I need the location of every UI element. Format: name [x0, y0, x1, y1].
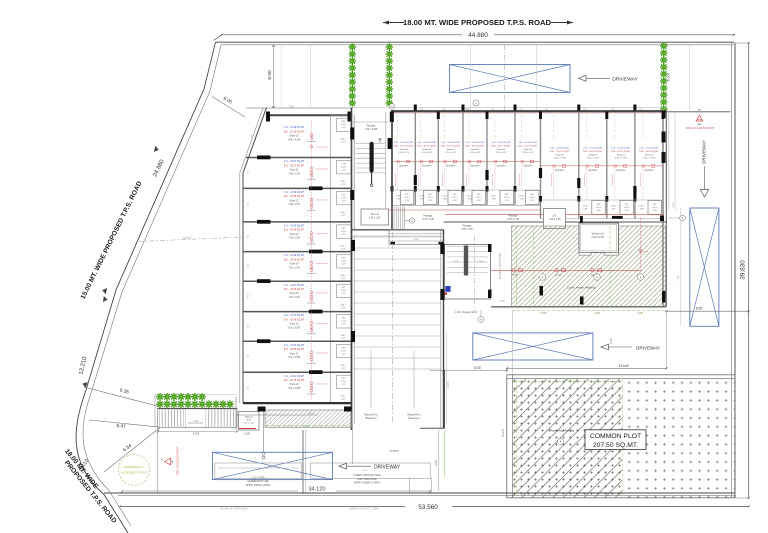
svg-text:UNDER GROUND TANK: UNDER GROUND TANK: [353, 474, 381, 477]
svg-text:1.27 x 1.00: 1.27 x 1.00: [244, 423, 255, 425]
svg-text:1.07 x: 1.07 x: [624, 207, 629, 209]
svg-text:smoke detector: smoke detector: [465, 173, 468, 186]
svg-text:1.07 x: 1.07 x: [504, 197, 509, 199]
svg-text:1.50 x: 1.50 x: [340, 396, 345, 398]
svg-text:1.03 x: 1.03 x: [583, 206, 588, 208]
svg-text:2.20 x 7.700: 2.20 x 7.700: [587, 158, 600, 160]
svg-text:7.83 x 2.06: 7.83 x 2.06: [288, 173, 300, 175]
svg-text:1.27: 1.27: [342, 293, 346, 295]
svg-text:1.95 x 1.95: 1.95 x 1.95: [549, 218, 561, 221]
svg-text:1.03 x: 1.03 x: [639, 206, 644, 208]
svg-text:FIRE ACCESS POINT: FIRE ACCESS POINT: [176, 446, 180, 475]
svg-text:1.27: 1.27: [342, 127, 346, 129]
svg-text:2.20 x 5.71: 2.20 x 5.71: [522, 152, 534, 154]
svg-text:B.A. - 18.01 SQ.MT: B.A. - 18.01 SQ.MT: [465, 144, 485, 147]
svg-text:Ambulance Visitor Parking: Ambulance Visitor Parking: [499, 252, 502, 278]
svg-text:Sprinkler: Sprinkler: [588, 169, 597, 172]
svg-text:FAP: FAP: [171, 459, 174, 464]
svg-text:smoke detector: smoke detector: [491, 173, 494, 186]
svg-text:smoke detector: smoke detector: [316, 322, 329, 325]
svg-text:B.A. - 20.78 SQ.MT: B.A. - 20.78 SQ.MT: [284, 379, 305, 382]
svg-text:6.00: 6.00: [474, 366, 481, 370]
svg-text:1.22 x: 1.22 x: [341, 381, 346, 383]
svg-text:B.A. - 20.08 SQ.MT: B.A. - 20.08 SQ.MT: [284, 288, 305, 291]
svg-text:C.VR: C.VR: [284, 468, 289, 470]
svg-text:Vehicle Lift: Vehicle Lift: [592, 233, 604, 236]
svg-text:smoke detector: smoke detector: [316, 232, 329, 235]
svg-text:53.560: 53.560: [418, 504, 438, 511]
svg-text:B.A. - 18.01 SQ.MT: B.A. - 18.01 SQ.MT: [550, 150, 570, 153]
svg-text:WC: WC: [505, 194, 509, 196]
svg-text:smoke detector: smoke detector: [316, 262, 329, 265]
svg-text:WC: WC: [597, 204, 601, 206]
svg-text:1.22 x: 1.22 x: [341, 261, 346, 263]
svg-text:C.A. - 21.04 SQ.MT: C.A. - 21.04 SQ.MT: [583, 147, 603, 150]
svg-text:1.50 x: 1.50 x: [340, 365, 345, 367]
svg-text:1.22 x: 1.22 x: [341, 124, 346, 126]
svg-text:Hydrant: Hydrant: [245, 416, 253, 419]
svg-text:2.20 x 5.71: 2.20 x 5.71: [470, 152, 482, 154]
svg-text:Sprinkler: Sprinkler: [446, 165, 455, 168]
svg-text:B.A. - 20.08 SQ.MT: B.A. - 20.08 SQ.MT: [284, 258, 305, 261]
svg-text:7.62 x 3.005: 7.62 x 3.005: [288, 327, 301, 329]
svg-text:Sprinkler: Sprinkler: [399, 165, 408, 168]
svg-text:APPR. 10000 LITERS: APPR. 10000 LITERS: [246, 484, 271, 487]
svg-text:2.20 x 7.700: 2.20 x 7.700: [643, 158, 656, 160]
svg-text:13.50: 13.50: [362, 470, 368, 472]
svg-text:Shop-12: Shop-12: [290, 200, 299, 202]
svg-text:Basement: Basement: [409, 417, 420, 420]
svg-text:smoke detector: smoke detector: [316, 352, 329, 355]
svg-text:smoke detector: smoke detector: [316, 382, 329, 385]
svg-text:B.A. - 18.01 SQ.MT: B.A. - 18.01 SQ.MT: [611, 150, 631, 153]
svg-text:6.000: 6.000: [667, 73, 671, 82]
svg-text:Passage: Passage: [367, 126, 377, 128]
svg-text:DRIVEWAY: DRIVEWAY: [612, 76, 638, 82]
svg-text:Shop-03: Shop-03: [556, 154, 565, 156]
svg-text:Shop-04: Shop-04: [524, 149, 533, 151]
svg-text:1.80 x 1.50: 1.80 x 1.50: [369, 217, 381, 220]
svg-text:6.00: 6.00: [434, 460, 438, 466]
svg-text:1.27: 1.27: [342, 353, 346, 355]
svg-text:smoke detector: smoke detector: [639, 173, 642, 186]
svg-text:B.A. - 18.01 SQ.MT: B.A. - 18.01 SQ.MT: [639, 150, 659, 153]
svg-text:C.A. - 21.04 SQ.MT: C.A. - 21.04 SQ.MT: [441, 141, 461, 144]
svg-text:Shop-11: Shop-11: [290, 170, 299, 172]
svg-text:smoke detector: smoke detector: [316, 291, 329, 294]
svg-text:B.A. - 20.08 SQ.MT: B.A. - 20.08 SQ.MT: [284, 318, 305, 321]
svg-text:7.62 x 2.06: 7.62 x 2.06: [288, 267, 300, 269]
svg-text:6.47: 6.47: [116, 423, 126, 430]
svg-text:1.22 x: 1.22 x: [341, 197, 346, 199]
svg-text:39.830: 39.830: [740, 260, 747, 280]
svg-text:1.500: 1.500: [303, 426, 309, 428]
svg-text:WC: WC: [477, 194, 481, 196]
svg-text:WC: WC: [653, 204, 657, 206]
svg-text:Rare Visitor Parking: Rare Visitor Parking: [550, 429, 574, 433]
svg-text:1.50 x: 1.50 x: [340, 275, 345, 277]
svg-text:AREA OF PLOT 2386: AREA OF PLOT 2386: [349, 507, 378, 511]
svg-text:2.600: 2.600: [453, 261, 459, 263]
svg-text:7.62 x 3.005: 7.62 x 3.005: [288, 388, 301, 390]
svg-text:Shop-08: Shop-08: [423, 149, 432, 151]
svg-text:B.A. - 18.01 SQ.MT: B.A. - 18.01 SQ.MT: [491, 144, 511, 147]
svg-text:C.A. - 21.99 SQ.MT: C.A. - 21.99 SQ.MT: [284, 254, 305, 257]
svg-text:6.00: 6.00: [267, 70, 273, 80]
svg-text:B.A. - 20.08 SQ.MT: B.A. - 20.08 SQ.MT: [284, 348, 305, 351]
svg-text:2.126: 2.126: [193, 421, 199, 423]
svg-text:1.22 x: 1.22 x: [341, 321, 346, 323]
svg-text:1.27: 1.27: [342, 234, 346, 236]
svg-text:7.015: 7.015: [678, 274, 680, 280]
svg-text:7.62 x 2.06: 7.62 x 2.06: [288, 238, 300, 240]
svg-text:Shop-09: Shop-09: [400, 149, 409, 151]
svg-text:10.075: 10.075: [448, 381, 450, 389]
svg-text:1.27: 1.27: [342, 170, 346, 172]
svg-text:2.20 x 7.700: 2.20 x 7.700: [615, 158, 628, 160]
svg-text:2.60 x 2.50: 2.60 x 2.50: [592, 236, 605, 239]
svg-text:1.03 x: 1.03 x: [442, 196, 447, 198]
svg-text:Shop-05: Shop-05: [497, 149, 506, 151]
svg-text:1.07 x: 1.07 x: [529, 197, 534, 199]
svg-text:1.10m Passage Width: 1.10m Passage Width: [455, 311, 478, 314]
svg-text:Cover Visitor Parking: Cover Visitor Parking: [566, 286, 595, 290]
svg-text:Shop-01: Shop-01: [617, 154, 626, 156]
svg-text:C.A. - 21.99 SQ.MT: C.A. - 21.99 SQ.MT: [284, 225, 305, 228]
svg-text:C.A. - 24.99 SQ.MT: C.A. - 24.99 SQ.MT: [284, 126, 305, 129]
svg-text:Shop-02: Shop-02: [589, 154, 598, 156]
svg-text:WC: WC: [428, 194, 432, 196]
svg-text:1.360: 1.360: [594, 312, 601, 315]
svg-text:44.880: 44.880: [468, 32, 488, 39]
svg-text:Fire Lift: Fire Lift: [371, 213, 379, 216]
svg-text:1.03 x: 1.03 x: [611, 206, 616, 208]
svg-text:WC: WC: [453, 194, 457, 196]
svg-text:5.900: 5.900: [541, 312, 548, 315]
svg-text:18.00 MT. WIDE PROPOSED T.P.S.: 18.00 MT. WIDE PROPOSED T.P.S. ROAD: [403, 18, 552, 27]
svg-text:1.22 x: 1.22 x: [341, 167, 346, 169]
svg-text:Sprinkler: Sprinkler: [555, 169, 564, 172]
svg-text:Passage: Passage: [463, 226, 473, 228]
svg-text:C.A. - 21.04 SQ.MT: C.A. - 21.04 SQ.MT: [394, 141, 414, 144]
svg-text:Shop-16: Shop-16: [290, 324, 299, 326]
svg-text:C.A. - 21.04 SQ.MT: C.A. - 21.04 SQ.MT: [417, 141, 437, 144]
svg-text:APPR. 100000 LITERS: APPR. 100000 LITERS: [354, 482, 380, 485]
svg-text:DRIVEWAY: DRIVEWAY: [636, 345, 660, 350]
svg-text:2.18 x 5.71: 2.18 x 5.71: [421, 152, 433, 154]
svg-text:7.536: 7.536: [288, 107, 294, 109]
svg-text:smoke detector: smoke detector: [316, 199, 329, 202]
svg-text:1.07 x: 1.07 x: [476, 197, 481, 199]
svg-text:1.27: 1.27: [342, 200, 346, 202]
svg-text:1.250: 1.250: [244, 433, 251, 436]
svg-text:B.A. - 18.01 SQ.MT: B.A. - 18.01 SQ.MT: [417, 144, 437, 147]
svg-text:Sprinkler: Sprinkler: [644, 169, 653, 172]
svg-text:Shop-15: Shop-15: [290, 293, 299, 295]
svg-text:Sprinkler: Sprinkler: [523, 165, 532, 168]
svg-text:smoke detector: smoke detector: [583, 173, 586, 186]
svg-text:Shop-10: Shop-10: [290, 136, 299, 138]
svg-text:B.A. - 20.17 SQ.MT: B.A. - 20.17 SQ.MT: [284, 164, 305, 167]
svg-text:1.27: 1.27: [342, 264, 346, 266]
svg-text:2.20 x 7.700: 2.20 x 7.700: [554, 158, 567, 160]
svg-text:1.27: 1.27: [342, 384, 346, 386]
svg-text:5.075: 5.075: [413, 239, 419, 241]
svg-text:1.07 x: 1.07 x: [404, 197, 409, 199]
svg-text:smoke detector: smoke detector: [441, 173, 444, 186]
svg-text:7.62 x 3.005: 7.62 x 3.005: [288, 357, 301, 359]
svg-text:Sprinkler: Sprinkler: [470, 165, 479, 168]
svg-text:4.63 x 1.98: 4.63 x 1.98: [507, 218, 519, 221]
svg-text:7.62 x 2.06: 7.62 x 2.06: [288, 297, 300, 299]
svg-text:smoke detector: smoke detector: [550, 173, 553, 186]
svg-text:2.20 x 5.71: 2.20 x 5.71: [496, 152, 508, 154]
svg-text:1.07 x: 1.07 x: [596, 207, 601, 209]
svg-text:PLAN OF GROUND: PLAN OF GROUND: [220, 507, 248, 511]
svg-text:C.A. - 21.97 SQ.MT: C.A. - 21.97 SQ.MT: [284, 344, 305, 347]
svg-text:C.A. - 21.04 SQ.MT: C.A. - 21.04 SQ.MT: [550, 147, 570, 150]
svg-text:C.A. - 23.07 SQ.MT: C.A. - 23.07 SQ.MT: [284, 160, 305, 163]
svg-text:C.A. - 23.08 SQ.MT: C.A. - 23.08 SQ.MT: [284, 191, 305, 194]
svg-text:Shop-06: Shop-06: [471, 149, 480, 151]
svg-text:DNC: DNC: [342, 121, 347, 123]
svg-text:4.47 x 1.98: 4.47 x 1.98: [422, 219, 434, 221]
svg-text:C.A. - 21.04 SQ.MT: C.A. - 21.04 SQ.MT: [611, 147, 631, 150]
svg-text:C.A. - 21.04 SQ.MT: C.A. - 21.04 SQ.MT: [518, 141, 538, 144]
svg-text:2.18 x 5.71: 2.18 x 5.71: [398, 152, 410, 154]
svg-text:ASSEMBLY POINT: ASSEMBLY POINT: [121, 471, 148, 475]
svg-text:1.07 x: 1.07 x: [427, 197, 432, 199]
svg-text:1.905: 1.905: [499, 301, 505, 303]
svg-text:Shop-18: Shop-18: [290, 384, 299, 386]
svg-text:1.07 x: 1.07 x: [652, 207, 657, 209]
svg-text:207.50 SQ.MT.: 207.50 SQ.MT.: [593, 442, 638, 449]
svg-text:7.83 x 2.06: 7.83 x 2.06: [288, 204, 300, 206]
svg-text:1.22 x: 1.22 x: [341, 231, 346, 233]
svg-text:A: A: [475, 101, 477, 105]
svg-text:smoke detector: smoke detector: [394, 173, 397, 186]
svg-text:4.275: 4.275: [308, 413, 314, 415]
svg-text:34.120: 34.120: [308, 486, 325, 492]
svg-text:FOR FIRE PUMP: FOR FIRE PUMP: [357, 478, 377, 481]
svg-text:1.22 x: 1.22 x: [341, 350, 346, 352]
svg-text:GENERATOR USE: GENERATOR USE: [247, 480, 269, 483]
svg-text:Shop-13: Shop-13: [290, 234, 299, 236]
svg-text:2.20 x 5.71: 2.20 x 5.71: [445, 152, 457, 154]
svg-text:Shop-07: Shop-07: [447, 149, 456, 151]
svg-text:4.00 x 3.45: 4.00 x 3.45: [461, 229, 473, 231]
svg-text:15.005: 15.005: [564, 378, 572, 381]
svg-text:1.03 x: 1.03 x: [396, 196, 401, 198]
svg-text:1.50 x: 1.50 x: [340, 181, 345, 183]
svg-text:smoke detector: smoke detector: [316, 146, 329, 149]
svg-text:Shop-17: Shop-17: [290, 353, 299, 355]
svg-text:Shop-14: Shop-14: [290, 264, 299, 266]
svg-text:WC: WC: [530, 194, 534, 196]
svg-text:13.675: 13.675: [501, 428, 505, 436]
svg-text:4.575: 4.575: [193, 432, 200, 436]
svg-text:Landing: Landing: [389, 449, 399, 453]
svg-text:B.A. - 18.01 SQ.MT: B.A. - 18.01 SQ.MT: [394, 144, 414, 147]
svg-text:13.640: 13.640: [618, 364, 628, 368]
svg-text:1.00 x 3.905: 1.00 x 3.905: [365, 129, 378, 131]
svg-text:C.A. - 21.04 SQ.MT: C.A. - 21.04 SQ.MT: [639, 147, 659, 150]
svg-text:B.A. - 18.01 SQ.MT: B.A. - 18.01 SQ.MT: [441, 144, 461, 147]
svg-text:Sprinkle: Sprinkle: [512, 273, 520, 276]
svg-text:Passage: Passage: [424, 216, 434, 218]
svg-text:C.A. - 21.97 SQ.MT: C.A. - 21.97 SQ.MT: [284, 284, 305, 287]
svg-text:B.A. - 20.08 SQ.MT: B.A. - 20.08 SQ.MT: [284, 195, 305, 198]
svg-text:DRIVEWAY: DRIVEWAY: [374, 465, 401, 471]
svg-text:1.03 x: 1.03 x: [419, 196, 424, 198]
svg-text:Sprinkler: Sprinkler: [616, 169, 625, 172]
svg-text:smoke detector: smoke detector: [316, 168, 329, 171]
svg-text:B.A. - 18.01 SQ.MT: B.A. - 18.01 SQ.MT: [518, 144, 538, 147]
svg-text:WC: WC: [625, 204, 629, 206]
svg-text:COMMON PLOT: COMMON PLOT: [590, 433, 641, 440]
svg-text:1.50 x: 1.50 x: [340, 305, 345, 307]
svg-text:Sprinkle: Sprinkle: [555, 273, 563, 276]
svg-text:B.A. - 20.08 SQ.MT: B.A. - 20.08 SQ.MT: [284, 229, 305, 232]
svg-text:C.A. - 21.04 SQ.MT: C.A. - 21.04 SQ.MT: [491, 141, 511, 144]
svg-text:smoke detector: smoke detector: [611, 173, 614, 186]
svg-text:WC: WC: [405, 194, 409, 196]
svg-text:1.03 x: 1.03 x: [491, 196, 496, 198]
svg-text:1.50 x: 1.50 x: [340, 212, 345, 214]
svg-text:smoke: smoke: [642, 251, 649, 253]
svg-text:1.50 x: 1.50 x: [340, 335, 345, 337]
svg-text:C.A. - 21.04 SQ.MT: C.A. - 21.04 SQ.MT: [465, 141, 485, 144]
svg-text:1.50 x: 1.50 x: [340, 139, 345, 141]
svg-text:4.180: 4.180: [637, 312, 644, 315]
svg-text:1.22 x: 1.22 x: [341, 290, 346, 292]
svg-text:B.A. - 22.10 SQ.MT: B.A. - 22.10 SQ.MT: [284, 130, 305, 133]
svg-text:Sprinkler: Sprinkler: [422, 165, 431, 168]
svg-text:1.50 x: 1.50 x: [340, 245, 345, 247]
svg-text:6.00: 6.00: [609, 338, 613, 344]
svg-text:Basement: Basement: [366, 417, 377, 420]
svg-text:Shop-21: Shop-21: [645, 154, 654, 156]
svg-text:1.07 x: 1.07 x: [452, 197, 457, 199]
svg-text:2.600: 2.600: [478, 261, 484, 263]
svg-text:3.66 x 4.100: 3.66 x 4.100: [288, 139, 301, 141]
svg-text:Pathway: Pathway: [183, 236, 193, 239]
svg-text:C.A. - 21.97 SQ.MT: C.A. - 21.97 SQ.MT: [284, 314, 305, 317]
svg-text:B.A. - 18.01 SQ.MT: B.A. - 18.01 SQ.MT: [583, 150, 603, 153]
svg-text:smoke detector: smoke detector: [417, 173, 420, 186]
svg-text:C.A. - 23.41 SQ.MT: C.A. - 23.41 SQ.MT: [284, 375, 305, 378]
svg-text:FIRE ACCESS POINT: FIRE ACCESS POINT: [686, 126, 715, 130]
svg-text:1.03 x: 1.03 x: [467, 196, 472, 198]
svg-text:EMERGENCY: EMERGENCY: [124, 465, 144, 469]
svg-text:DRIVEWAY: DRIVEWAY: [702, 140, 707, 164]
svg-text:U.G.T. FOR: U.G.T. FOR: [251, 477, 264, 480]
svg-text:Sprinkler: Sprinkler: [496, 165, 505, 168]
svg-text:smoke detector: smoke detector: [518, 173, 521, 186]
svg-text:1.27: 1.27: [342, 324, 346, 326]
svg-text:6.00: 6.00: [696, 307, 703, 311]
svg-text:1.03 x: 1.03 x: [519, 196, 524, 198]
